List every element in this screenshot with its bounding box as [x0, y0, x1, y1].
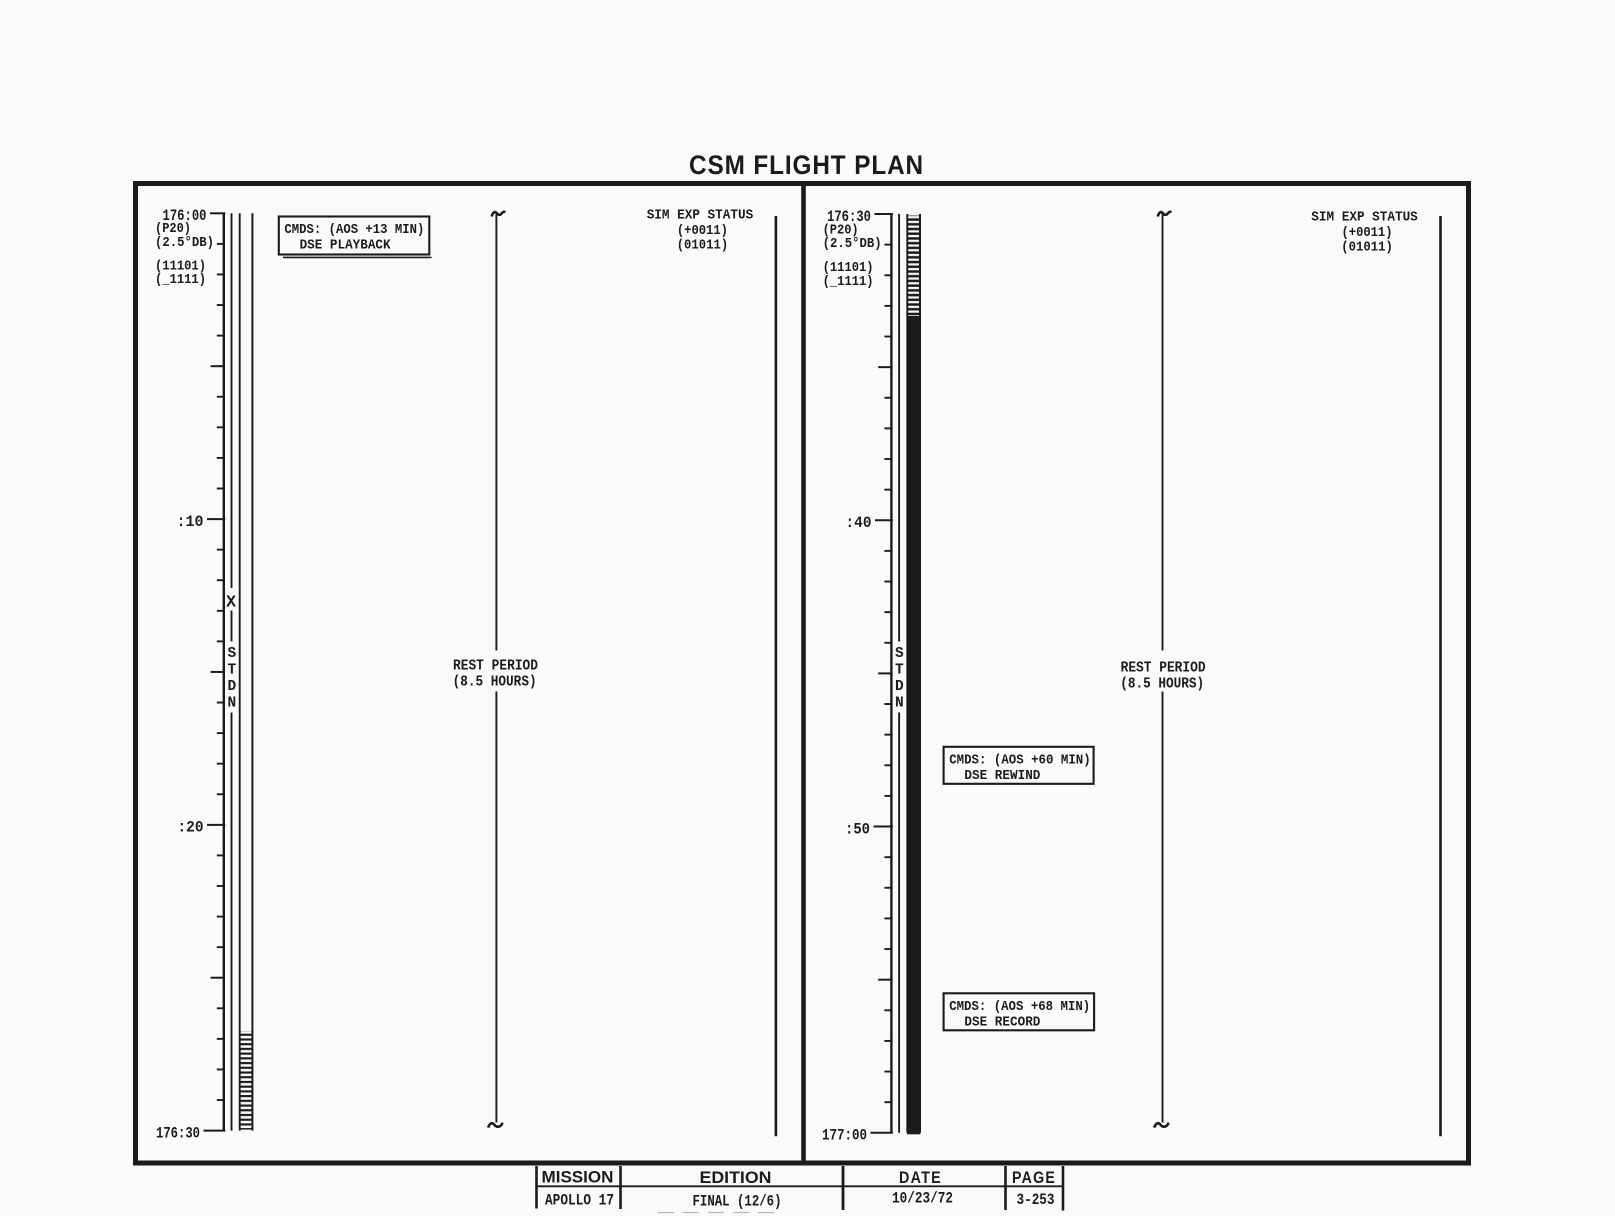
- svg-text:(+0011): (+0011): [677, 223, 728, 239]
- svg-text::40: :40: [846, 514, 872, 532]
- svg-text:(01011): (01011): [677, 237, 729, 253]
- svg-text::20: :20: [178, 819, 204, 837]
- svg-text:SIM EXP STATUS: SIM EXP STATUS: [647, 208, 754, 224]
- svg-text:(8.5 HOURS): (8.5 HOURS): [1120, 677, 1204, 693]
- svg-text:APOLLO 17: APOLLO 17: [545, 1192, 614, 1210]
- svg-text:FINAL (12/6): FINAL (12/6): [693, 1192, 782, 1210]
- svg-text:T: T: [227, 663, 236, 679]
- svg-text:MISSION: MISSION: [542, 1168, 614, 1187]
- svg-text:S: S: [227, 646, 236, 662]
- svg-text:CMDS: (AOS +60 MIN): CMDS: (AOS +60 MIN): [949, 752, 1090, 768]
- svg-text:PAGE: PAGE: [1012, 1168, 1056, 1187]
- svg-text:CMDS: (AOS +13 MIN): CMDS: (AOS +13 MIN): [284, 222, 424, 238]
- svg-text:D: D: [227, 679, 236, 695]
- svg-text:(01011): (01011): [1341, 239, 1393, 255]
- svg-text:(_1111): (_1111): [823, 274, 874, 290]
- svg-text::50: :50: [845, 820, 870, 838]
- svg-text:N: N: [895, 695, 904, 711]
- svg-text:REST PERIOD: REST PERIOD: [1121, 661, 1206, 677]
- svg-text:(+0011): (+0011): [1342, 225, 1393, 241]
- svg-text:176:30: 176:30: [156, 1125, 200, 1143]
- svg-text:X: X: [226, 593, 236, 612]
- svg-text:S: S: [895, 646, 904, 662]
- svg-text:3-253: 3-253: [1017, 1191, 1055, 1209]
- svg-text:DSE RECORD: DSE RECORD: [964, 1015, 1040, 1031]
- svg-text:DSE PLAYBACK: DSE PLAYBACK: [300, 238, 392, 254]
- svg-text:(2.5°DB): (2.5°DB): [823, 236, 882, 252]
- svg-text:SIM EXP STATUS: SIM EXP STATUS: [1311, 210, 1418, 226]
- svg-text:D: D: [895, 679, 904, 695]
- svg-text:10/23/72: 10/23/72: [892, 1190, 953, 1208]
- svg-text:T: T: [895, 663, 904, 679]
- svg-text:DSE REWIND: DSE REWIND: [964, 768, 1040, 784]
- svg-text:EDITION: EDITION: [700, 1168, 772, 1187]
- svg-text:(8.5 HOURS): (8.5 HOURS): [453, 675, 537, 691]
- svg-text:DATE: DATE: [899, 1168, 942, 1187]
- svg-text:CMDS: (AOS +68 MIN): CMDS: (AOS +68 MIN): [949, 999, 1090, 1015]
- svg-text::10: :10: [177, 513, 204, 531]
- svg-text:REST PERIOD: REST PERIOD: [453, 659, 538, 675]
- svg-text:N: N: [227, 695, 236, 711]
- svg-text:CSM FLIGHT PLAN: CSM FLIGHT PLAN: [689, 150, 924, 180]
- svg-text:(2.5°DB): (2.5°DB): [155, 235, 214, 251]
- svg-text:(_1111): (_1111): [155, 272, 206, 288]
- svg-text:177:00: 177:00: [822, 1127, 867, 1145]
